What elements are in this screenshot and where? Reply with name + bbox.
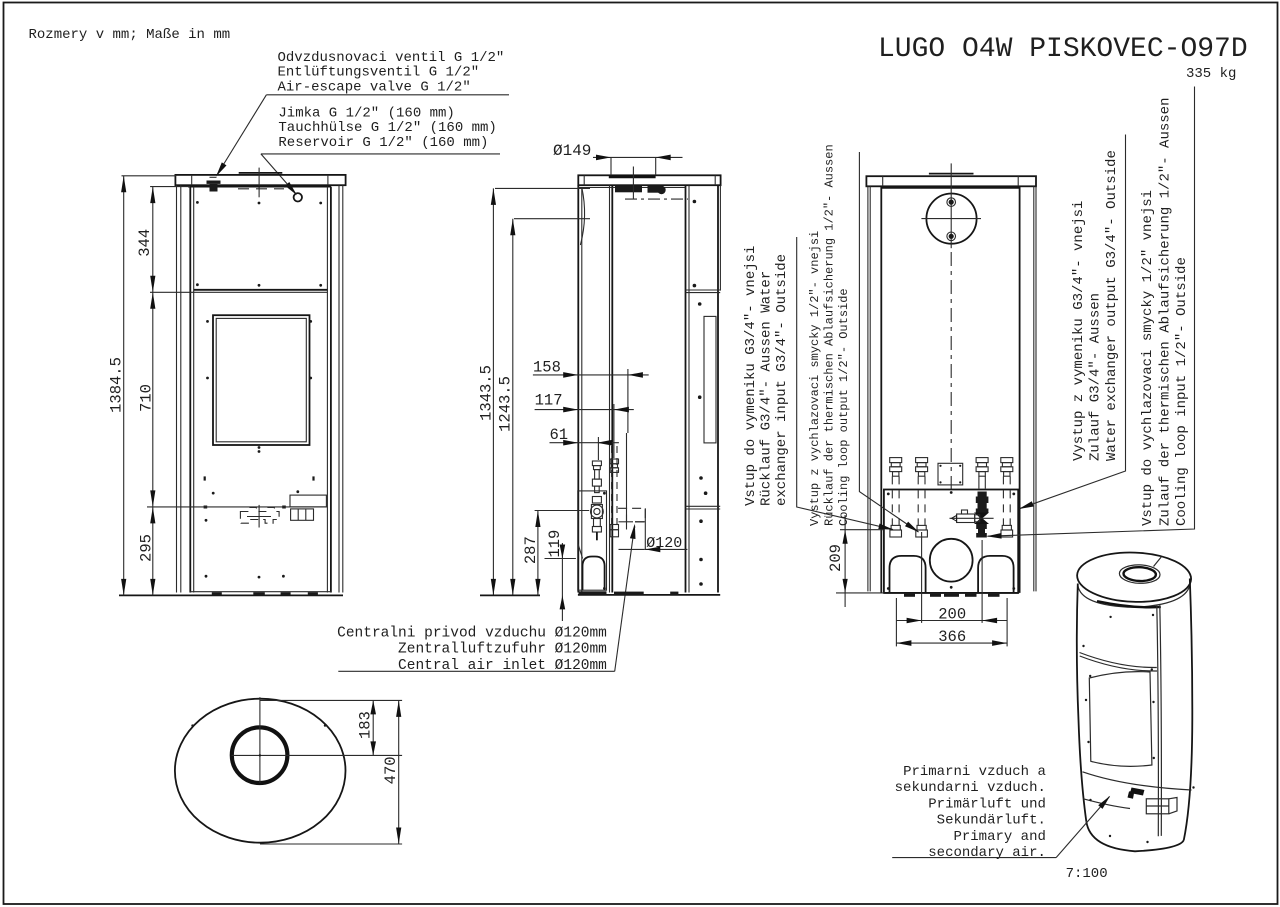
svg-text:Primarni vzduch a: Primarni vzduch a	[903, 764, 1046, 780]
svg-text:7:100: 7:100	[1066, 866, 1108, 882]
svg-text:Water exchanger output G3/4"-: Water exchanger output G3/4"- Outside	[1104, 150, 1120, 461]
svg-text:Vystup z vychlazovaci smycky 1: Vystup z vychlazovaci smycky 1/2"- vnejs…	[808, 231, 822, 526]
svg-text:Primary and: Primary and	[953, 829, 1045, 845]
svg-text:sekundarni vzduch.: sekundarni vzduch.	[895, 780, 1046, 796]
svg-text:Vstup do vymeniku G3/4"- vnejs: Vstup do vymeniku G3/4"- vnejsi	[743, 246, 759, 506]
svg-text:Centralni privod vzduchu Ø120m: Centralni privod vzduchu Ø120mm	[337, 626, 607, 642]
svg-text:exchanger input G3/4"- Outside: exchanger input G3/4"- Outside	[774, 254, 790, 506]
svg-text:Ø149: Ø149	[553, 142, 591, 160]
svg-text:295: 295	[138, 534, 156, 562]
svg-text:Tauchhülse G 1/2" (160 mm): Tauchhülse G 1/2" (160 mm)	[278, 120, 496, 136]
svg-text:Rücklauf G3/4"- Aussen Water: Rücklauf G3/4"- Aussen Water	[759, 271, 775, 506]
svg-text:209: 209	[827, 544, 845, 572]
svg-text:344: 344	[136, 229, 154, 257]
svg-text:1243.5: 1243.5	[497, 376, 515, 432]
svg-text:Vystup z vymeniku G3/4"- vnejs: Vystup z vymeniku G3/4"- vnejsi	[1071, 201, 1087, 461]
svg-text:Vstup do vychlazovaci smycky 1: Vstup do vychlazovaci smycky 1/2" vnejsi	[1140, 190, 1156, 526]
svg-text:710: 710	[138, 384, 156, 412]
svg-text:158: 158	[533, 359, 561, 377]
svg-text:119: 119	[546, 530, 564, 558]
svg-text:Odvzdusnovaci ventil G 1/2": Odvzdusnovaci ventil G 1/2"	[278, 50, 505, 66]
svg-text:Cooling loop input 1/2"- Outsi: Cooling loop input 1/2"- Outside	[1174, 257, 1190, 526]
svg-text:Entlüftungsventil G 1/2": Entlüftungsventil G 1/2"	[278, 65, 480, 81]
svg-text:Sekundärluft.: Sekundärluft.	[937, 813, 1046, 829]
svg-text:183: 183	[357, 711, 375, 739]
svg-text:Air-escape valve G 1/2": Air-escape valve G 1/2"	[278, 80, 471, 96]
svg-text:1384.5: 1384.5	[108, 357, 126, 413]
svg-text:Zentralluftzufuhr Ø120mm: Zentralluftzufuhr Ø120mm	[398, 642, 607, 658]
svg-text:secondary air.: secondary air.	[928, 845, 1046, 861]
svg-text:Rozmery v mm; Maße in mm: Rozmery v mm; Maße in mm	[29, 27, 231, 43]
svg-text:470: 470	[382, 756, 400, 784]
svg-text:Rücklauf der thermischen Ablau: Rücklauf der thermischen Ablaufsicherung…	[823, 144, 837, 526]
svg-text:LUGO O4W PISKOVEC-O97D: LUGO O4W PISKOVEC-O97D	[878, 34, 1248, 65]
svg-text:117: 117	[535, 392, 563, 410]
svg-text:335 kg: 335 kg	[1186, 66, 1236, 82]
svg-text:Zulauf G3/4"- Aussen: Zulauf G3/4"- Aussen	[1087, 293, 1103, 461]
svg-text:Cooling loop output 1/2"- Outs: Cooling loop output 1/2"- Outside	[837, 288, 851, 526]
svg-text:Jimka G 1/2" (160 mm): Jimka G 1/2" (160 mm)	[278, 106, 454, 122]
svg-text:1343.5: 1343.5	[477, 365, 495, 421]
svg-text:Primärluft und: Primärluft und	[928, 796, 1046, 812]
svg-text:Reservoir G 1/2" (160 mm): Reservoir G 1/2" (160 mm)	[278, 135, 488, 151]
svg-text:Zulauf der thermischen Ablaufs: Zulauf der thermischen Ablaufsicherung 1…	[1158, 98, 1174, 526]
svg-text:287: 287	[522, 536, 540, 564]
